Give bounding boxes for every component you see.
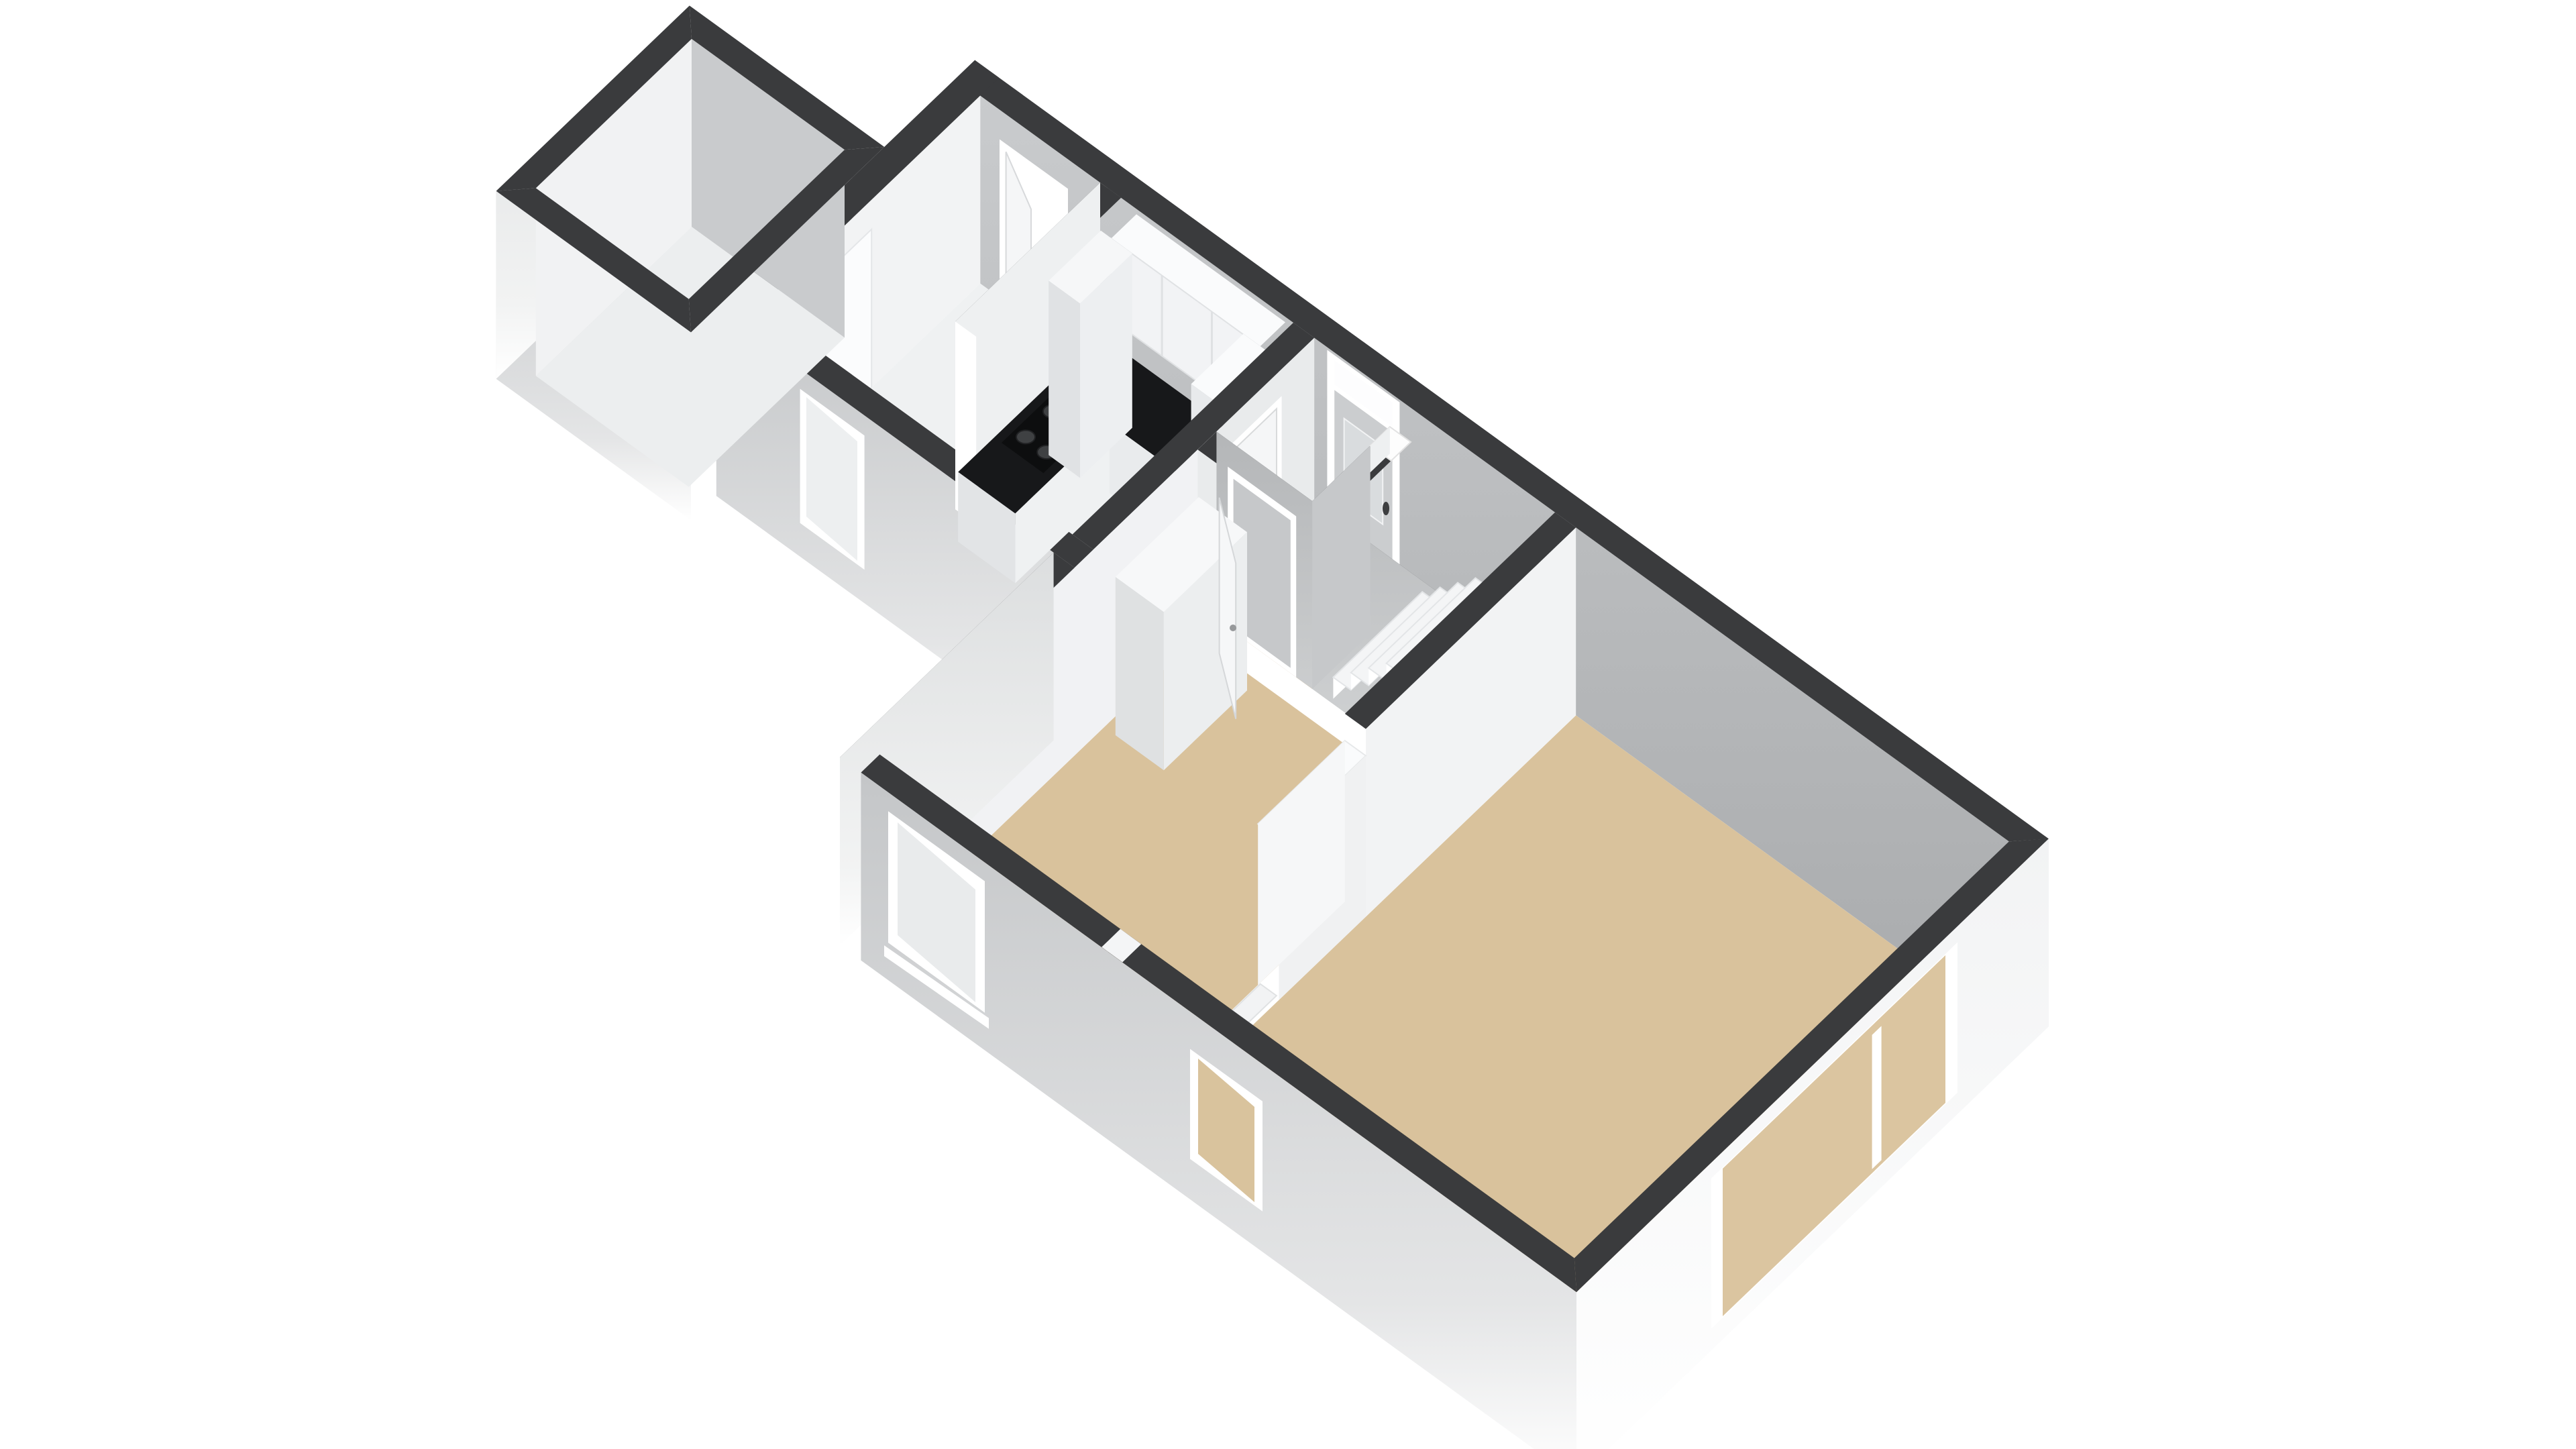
- entrance-door-handle: [1383, 502, 1389, 515]
- hob-burner-3: [1016, 430, 1035, 443]
- tall-cabinet-nw-face-sw: [1049, 280, 1080, 478]
- living-big-window-mullion: [1872, 1026, 1882, 1169]
- floorplan-shapes: [496, 5, 2049, 1449]
- floorplan-3d-view: [0, 0, 2576, 1449]
- floorplan-3d-svg: [0, 0, 2576, 1449]
- kitchen-cabinet-seam-1: [1161, 275, 1163, 357]
- bedroom-door-handle: [1230, 625, 1236, 631]
